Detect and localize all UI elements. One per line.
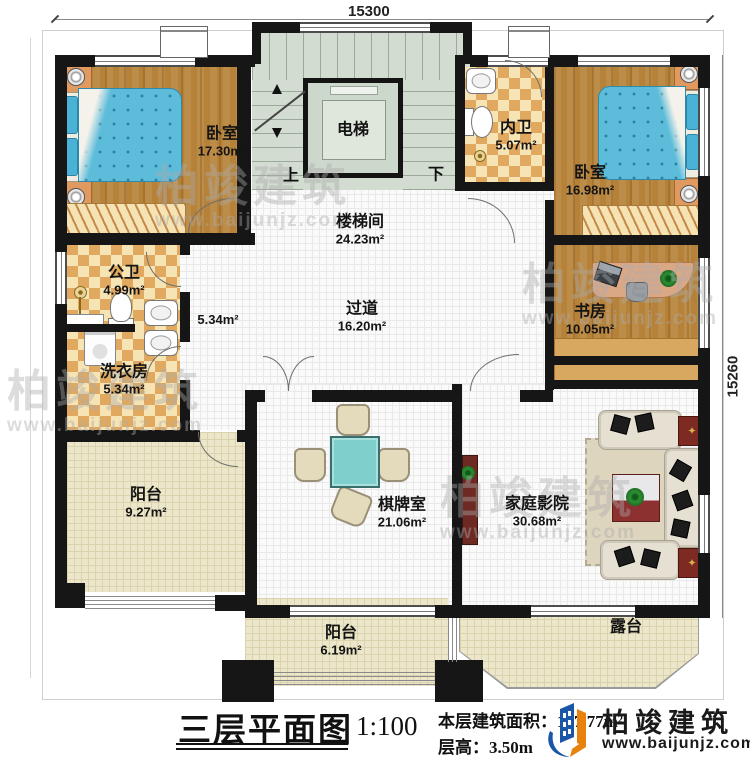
wall	[55, 233, 255, 245]
sofa-pillow	[634, 412, 654, 432]
wall	[252, 22, 261, 64]
floor-height-line: 层高：3.50m	[438, 733, 533, 758]
chair	[336, 404, 370, 436]
wall	[180, 292, 190, 342]
sink	[466, 68, 496, 94]
room-label-public-bath: 公卫 4.99m²	[103, 264, 144, 299]
brand-logo: 柏竣建筑 www.baijunjz.com	[540, 695, 750, 761]
wall	[245, 390, 257, 605]
plant-icon	[461, 466, 475, 480]
wall	[455, 182, 554, 191]
room-label-game-room: 棋牌室 21.06m²	[378, 496, 426, 531]
wall	[245, 605, 290, 618]
sink	[144, 300, 178, 326]
window	[531, 605, 635, 617]
window	[698, 495, 710, 553]
stairs-up-label: 上	[283, 166, 299, 185]
dim-tick	[706, 15, 714, 23]
chair	[378, 448, 410, 482]
study-bay-seat	[554, 338, 700, 358]
dim-width: 15300	[348, 3, 390, 20]
room-label-balcony-bottom: 阳台 6.19m²	[320, 624, 361, 659]
bay-window-box	[160, 26, 208, 58]
desk-chair	[626, 282, 648, 302]
floor-height-value: 3.50m	[489, 738, 533, 757]
window	[578, 55, 670, 67]
wall	[545, 200, 554, 390]
chair	[294, 448, 326, 482]
game-table	[330, 436, 380, 488]
wall	[455, 55, 465, 191]
wall	[554, 356, 698, 365]
floor-drain-icon	[474, 150, 486, 162]
washing-machine	[84, 330, 116, 366]
title-underline	[176, 743, 348, 745]
elevator-top-bar	[330, 86, 378, 95]
wall	[55, 324, 135, 332]
room-label-hallway: 过道 16.20m²	[338, 300, 386, 335]
stair-arrow-up-icon	[272, 84, 282, 94]
stairs-down-label: 下	[428, 165, 444, 184]
terrace-railing	[448, 618, 460, 662]
toilet-bowl	[471, 106, 493, 138]
plant-icon	[660, 270, 677, 287]
room-label-terrace: 露台	[610, 617, 642, 636]
wall	[545, 235, 708, 245]
stair-arrow-down-icon	[272, 128, 282, 138]
window	[55, 252, 67, 304]
window	[698, 258, 710, 348]
wall	[635, 605, 710, 618]
brand-website: www.baijunjz.com	[602, 735, 750, 753]
stairs-top-flight	[252, 33, 472, 80]
room-label-study: 书房 10.05m²	[566, 303, 614, 338]
room-label-corridor: 5.34m²	[197, 312, 238, 328]
dim-height: 15260	[724, 356, 741, 398]
plant-icon	[626, 488, 644, 506]
balcony-corner	[55, 583, 85, 608]
room-label-stairwell: 楼梯间 24.23m²	[336, 213, 384, 248]
title-block: 三层平面图 1:100 本层建筑面积：197.77m² 层高：3.50m 柏竣建…	[0, 695, 750, 763]
sofa-bottom	[600, 540, 680, 580]
bed-duvet	[78, 88, 182, 182]
floor-plan-page: { "dimensions": { "width": "15300", "hei…	[0, 0, 750, 763]
wall	[452, 384, 462, 605]
eave-outline-2	[30, 38, 45, 678]
wall	[312, 390, 452, 402]
wall	[55, 430, 200, 442]
balcony-corner	[215, 595, 248, 611]
dim-line-right	[722, 55, 723, 618]
wall	[435, 605, 531, 618]
sofa-pillow	[670, 518, 690, 538]
wardrobe	[60, 203, 186, 235]
brand-logo-icon	[540, 697, 598, 759]
window	[300, 22, 430, 33]
balcony-railing	[274, 672, 435, 685]
floor-plan: 柏竣建筑 www.baijunjz.com 柏竣建筑 www.baijunjz.…	[0, 0, 750, 763]
wall	[180, 233, 190, 255]
room-label-bedroom-left: 卧室 17.30m²	[198, 125, 246, 160]
lamp-pole	[79, 297, 81, 315]
wall	[545, 55, 554, 182]
wardrobe	[582, 205, 700, 237]
room-label-balcony-left: 阳台 9.27m²	[125, 486, 166, 521]
balcony-railing	[85, 596, 215, 609]
room-label-bedroom-right: 卧室 16.98m²	[566, 164, 614, 199]
bay-window-box	[508, 26, 550, 58]
window	[698, 88, 710, 176]
title-underline-2	[176, 748, 348, 750]
room-label-inner-bath: 内卫 5.07m²	[495, 119, 536, 154]
wall	[180, 380, 190, 430]
floor-height-label: 层高：	[438, 738, 489, 757]
room-label-elevator: 电梯	[337, 120, 369, 139]
wall	[520, 390, 553, 402]
plan-scale: 1:100	[356, 711, 418, 742]
room-label-laundry: 洗衣房 5.34m²	[100, 363, 148, 398]
wall	[545, 380, 708, 389]
room-label-home-theater: 家庭影院 30.68m²	[505, 495, 569, 530]
terrace-floor	[460, 612, 698, 687]
sliding-door	[290, 605, 435, 617]
